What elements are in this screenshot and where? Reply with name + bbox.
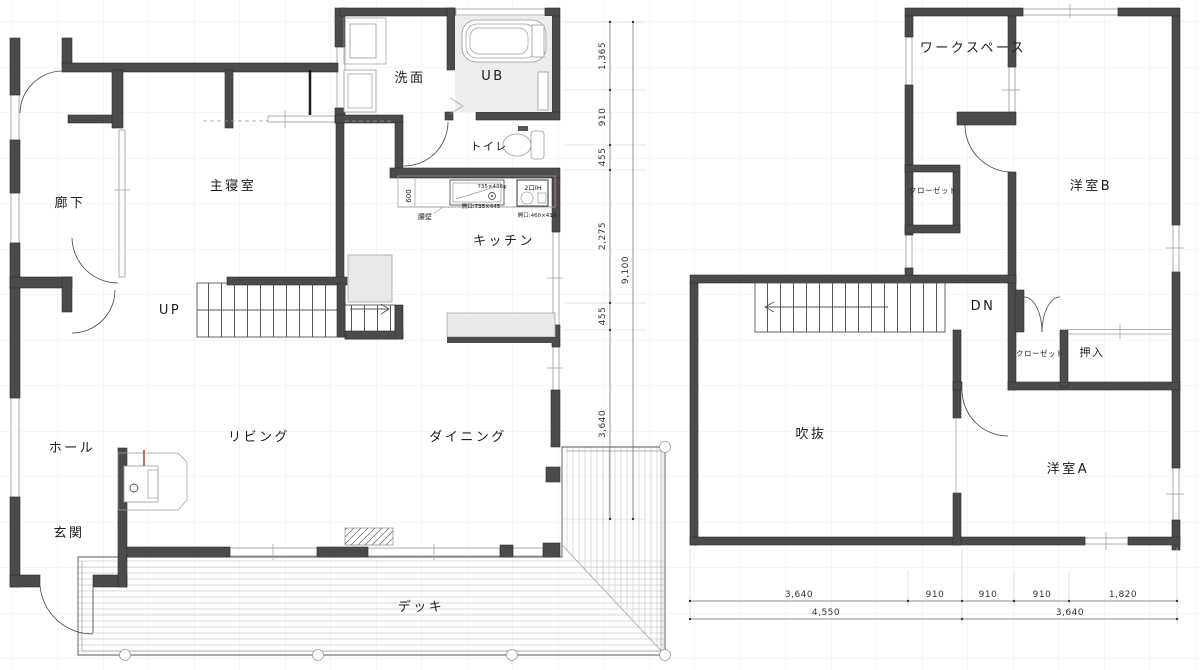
dim-v-3: 2,275 <box>598 222 608 250</box>
dim-b-0: 3,640 <box>785 590 813 600</box>
dim-b-total-1: 3,640 <box>1056 608 1084 618</box>
hearth-step <box>345 528 393 545</box>
dim-b-3: 910 <box>1033 590 1052 600</box>
room-label-living: リビング <box>228 430 290 445</box>
room-label-entrance: 玄関 <box>53 526 84 541</box>
room-label-room-a: 洋室A <box>1047 461 1089 477</box>
note-ih-opening: 開口:460×410 <box>518 212 557 219</box>
note-half-wall: 腰壁 <box>418 212 432 221</box>
stairs-up-label: UP <box>159 303 181 318</box>
floorplan-canvas: 主寝室 廊下 洗面 UB トイレ キッチン リビング ダイニング ホール 玄関 … <box>0 0 1200 670</box>
room-label-bedroom: 主寝室 <box>210 178 257 194</box>
room-label-kitchen: キッチン <box>473 234 535 249</box>
dim-v-1: 910 <box>598 108 608 127</box>
note-ih: 2口IH <box>524 184 542 192</box>
dim-v-2: 455 <box>598 148 608 167</box>
room-label-bath: UB <box>481 69 504 84</box>
dim-b-1: 910 <box>926 590 945 600</box>
dim-b-total-0: 4,550 <box>812 608 840 618</box>
room-label-deck: デッキ <box>398 599 445 615</box>
island-counter <box>447 313 557 343</box>
room-label-washroom: 洗面 <box>394 71 425 86</box>
room-label-oshiire: 押入 <box>1080 345 1105 359</box>
note-counter-depth: 600 <box>405 189 413 202</box>
pantry-cabinet <box>348 255 392 302</box>
bathtub <box>450 16 552 114</box>
room-label-closet-a: クローゼット <box>1016 348 1064 358</box>
dim-v-total: 9,100 <box>621 256 631 284</box>
dim-v-0: 1,365 <box>598 42 608 70</box>
room-label-hall: ホール <box>49 441 96 456</box>
room-label-workspace: ワークスペース <box>920 41 1027 56</box>
dim-v-5: 3,640 <box>598 410 608 438</box>
dim-b-4: 1,820 <box>1109 590 1137 600</box>
room-label-closet-b: クローゼット <box>909 185 957 195</box>
room-label-dining: ダイニング <box>429 430 507 445</box>
room-label-corridor: 廊下 <box>54 195 85 211</box>
floorplan-page: 主寝室 廊下 洗面 UB トイレ キッチン リビング ダイニング ホール 玄関 … <box>0 0 1200 670</box>
room-label-room-b: 洋室B <box>1070 178 1112 194</box>
stairs-dn-label: DN <box>971 299 996 314</box>
stairs-dn <box>755 283 945 332</box>
dim-v-4: 455 <box>598 307 608 326</box>
room-label-toilet: トイレ <box>470 140 508 153</box>
dim-b-2: 910 <box>979 590 998 600</box>
note-sink-opening: 開口:735×445 <box>462 203 501 210</box>
note-sink-top: 735×436φ <box>477 184 507 190</box>
room-label-void: 吹抜 <box>795 426 826 442</box>
